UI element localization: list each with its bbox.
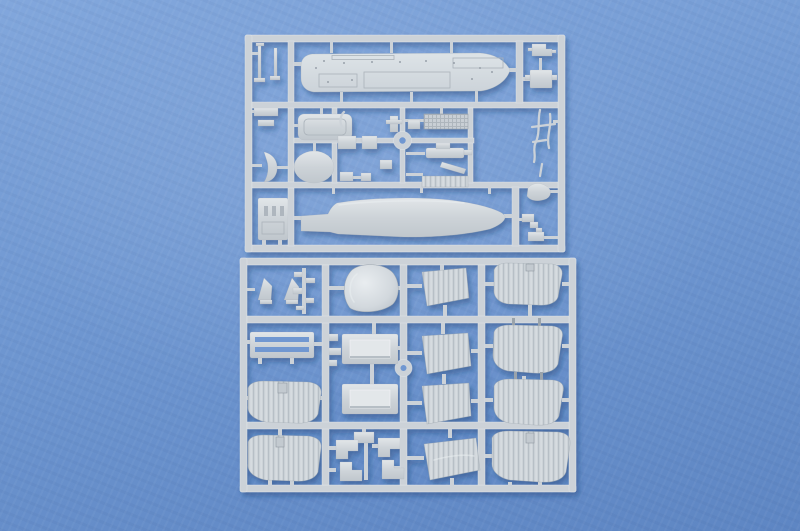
part-beveled-hatch-2 bbox=[342, 384, 398, 414]
part-trapezoid-panel-3 bbox=[422, 383, 471, 424]
part-bracket-piece bbox=[254, 108, 278, 126]
part-small-brackets bbox=[522, 214, 544, 241]
part-diagonal-strip bbox=[440, 162, 466, 174]
part-beveled-hatch-1 bbox=[342, 334, 398, 364]
part-davits bbox=[254, 43, 280, 82]
part-ribbed-panel-top-right bbox=[494, 263, 562, 305]
part-main-deck bbox=[301, 53, 510, 92]
part-c-brackets bbox=[336, 438, 404, 481]
part-ribbed-panel-right-3 bbox=[494, 372, 564, 425]
part-trapezoid-panel-2 bbox=[422, 333, 471, 374]
part-trapezoid-panel-4 bbox=[424, 438, 480, 480]
part-boat-oval bbox=[294, 151, 334, 183]
part-small-cluster-2 bbox=[329, 334, 341, 366]
part-hull-dome bbox=[344, 265, 398, 312]
part-superstructure-block bbox=[258, 198, 288, 240]
part-ribbed-strip bbox=[422, 176, 468, 187]
sprue-a-upper bbox=[245, 35, 565, 252]
part-grating-panel bbox=[424, 114, 468, 129]
part-trapezoid-panel-1 bbox=[422, 268, 469, 306]
part-gun-mount bbox=[426, 143, 472, 158]
part-lower-hull-half bbox=[301, 198, 505, 237]
part-ribbed-panel-right-4 bbox=[492, 431, 570, 482]
part-masts-antennas bbox=[532, 110, 555, 176]
part-ladder-vent-panel bbox=[250, 332, 314, 358]
part-ribbed-panel-right-2 bbox=[493, 318, 563, 373]
sprue-b-lower bbox=[240, 258, 576, 492]
part-fitting-box bbox=[525, 58, 557, 88]
sprue-photo-canvas bbox=[0, 0, 800, 531]
part-ribbed-panel-left-3 bbox=[248, 381, 321, 423]
part-top-fitting bbox=[528, 44, 556, 56]
part-mini-runner-cluster bbox=[293, 268, 315, 314]
photo-background bbox=[0, 0, 800, 531]
part-ribbed-panel-left-4 bbox=[248, 435, 321, 481]
part-crescent bbox=[264, 152, 277, 182]
